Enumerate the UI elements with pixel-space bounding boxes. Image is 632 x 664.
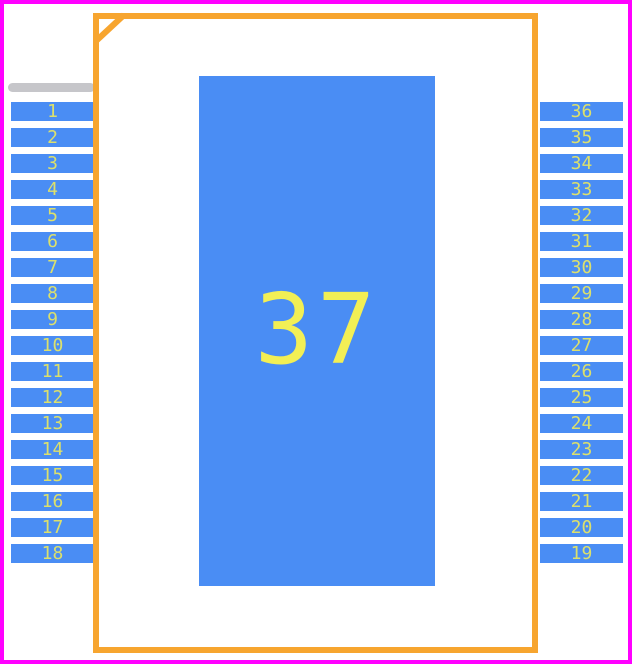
pin-pad-13: 13 bbox=[11, 414, 94, 433]
pin-pad-27: 27 bbox=[540, 336, 623, 355]
pin-number-label: 12 bbox=[42, 388, 64, 407]
pin-pad-6: 6 bbox=[11, 232, 94, 251]
pin-number-label: 31 bbox=[571, 232, 593, 251]
pin-number-label: 22 bbox=[571, 466, 593, 485]
pin-number-label: 2 bbox=[47, 128, 58, 147]
pin-pad-26: 26 bbox=[540, 362, 623, 381]
pin-number-label: 18 bbox=[42, 544, 64, 563]
pin-pad-34: 34 bbox=[540, 154, 623, 173]
pin-number-label: 13 bbox=[42, 414, 64, 433]
pin-pad-2: 2 bbox=[11, 128, 94, 147]
pin-number-label: 32 bbox=[571, 206, 593, 225]
pin-number-label: 27 bbox=[571, 336, 593, 355]
pin-pad-17: 17 bbox=[11, 518, 94, 537]
pin-pad-15: 15 bbox=[11, 466, 94, 485]
pin-number-label: 33 bbox=[571, 180, 593, 199]
pin-pad-9: 9 bbox=[11, 310, 94, 329]
pin-number-label: 30 bbox=[571, 258, 593, 277]
pin-number-label: 29 bbox=[571, 284, 593, 303]
pin-pad-31: 31 bbox=[540, 232, 623, 251]
pin-number-label: 19 bbox=[571, 544, 593, 563]
pin-number-label: 36 bbox=[571, 102, 593, 121]
pin-number-label: 23 bbox=[571, 440, 593, 459]
pin-number-label: 26 bbox=[571, 362, 593, 381]
pin-pad-11: 11 bbox=[11, 362, 94, 381]
pin-number-label: 25 bbox=[571, 388, 593, 407]
pin-pad-23: 23 bbox=[540, 440, 623, 459]
pin-pad-5: 5 bbox=[11, 206, 94, 225]
pin-pad-24: 24 bbox=[540, 414, 623, 433]
pin-number-label: 14 bbox=[42, 440, 64, 459]
pin-pad-32: 32 bbox=[540, 206, 623, 225]
pin-number-label: 28 bbox=[571, 310, 593, 329]
pin-pad-8: 8 bbox=[11, 284, 94, 303]
pin-pad-29: 29 bbox=[540, 284, 623, 303]
pin-pad-19: 19 bbox=[540, 544, 623, 563]
pin-pad-14: 14 bbox=[11, 440, 94, 459]
pin-pad-22: 22 bbox=[540, 466, 623, 485]
pin-number-label: 10 bbox=[42, 336, 64, 355]
pin-number-label: 9 bbox=[47, 310, 58, 329]
pin-pad-1: 1 bbox=[11, 102, 94, 121]
pin-number-label: 1 bbox=[47, 102, 58, 121]
pin-number-label: 16 bbox=[42, 492, 64, 511]
thermal-pad: 37 bbox=[199, 76, 435, 586]
pin-pad-16: 16 bbox=[11, 492, 94, 511]
pin-pad-7: 7 bbox=[11, 258, 94, 277]
pin-pad-18: 18 bbox=[11, 544, 94, 563]
pin1-marker-bar bbox=[8, 83, 95, 92]
pin-number-label: 17 bbox=[42, 518, 64, 537]
pin-pad-30: 30 bbox=[540, 258, 623, 277]
pin-number-label: 7 bbox=[47, 258, 58, 277]
pin-number-label: 11 bbox=[42, 362, 64, 381]
pin-number-label: 8 bbox=[47, 284, 58, 303]
pin-pad-33: 33 bbox=[540, 180, 623, 199]
pin-number-label: 35 bbox=[571, 128, 593, 147]
pin-pad-35: 35 bbox=[540, 128, 623, 147]
pin-number-label: 4 bbox=[47, 180, 58, 199]
pin1-chamfer-line bbox=[96, 15, 124, 41]
pin-pad-28: 28 bbox=[540, 310, 623, 329]
pin-number-label: 24 bbox=[571, 414, 593, 433]
footprint-preview-canvas: 123456789101112131415161718 363534333231… bbox=[0, 0, 632, 664]
pin-number-label: 3 bbox=[47, 154, 58, 173]
pin-number-label: 21 bbox=[571, 492, 593, 511]
pin-pad-10: 10 bbox=[11, 336, 94, 355]
pin-number-label: 15 bbox=[42, 466, 64, 485]
pin-number-label: 20 bbox=[571, 518, 593, 537]
pin-pad-36: 36 bbox=[540, 102, 623, 121]
pin-pad-4: 4 bbox=[11, 180, 94, 199]
pin-pad-20: 20 bbox=[540, 518, 623, 537]
pin-pad-3: 3 bbox=[11, 154, 94, 173]
pin-pad-21: 21 bbox=[540, 492, 623, 511]
pin-number-label: 34 bbox=[571, 154, 593, 173]
pin-number-label: 5 bbox=[47, 206, 58, 225]
thermal-pad-number-label: 37 bbox=[255, 273, 380, 386]
pin-pad-12: 12 bbox=[11, 388, 94, 407]
pin-pad-25: 25 bbox=[540, 388, 623, 407]
pin-number-label: 6 bbox=[47, 232, 58, 251]
